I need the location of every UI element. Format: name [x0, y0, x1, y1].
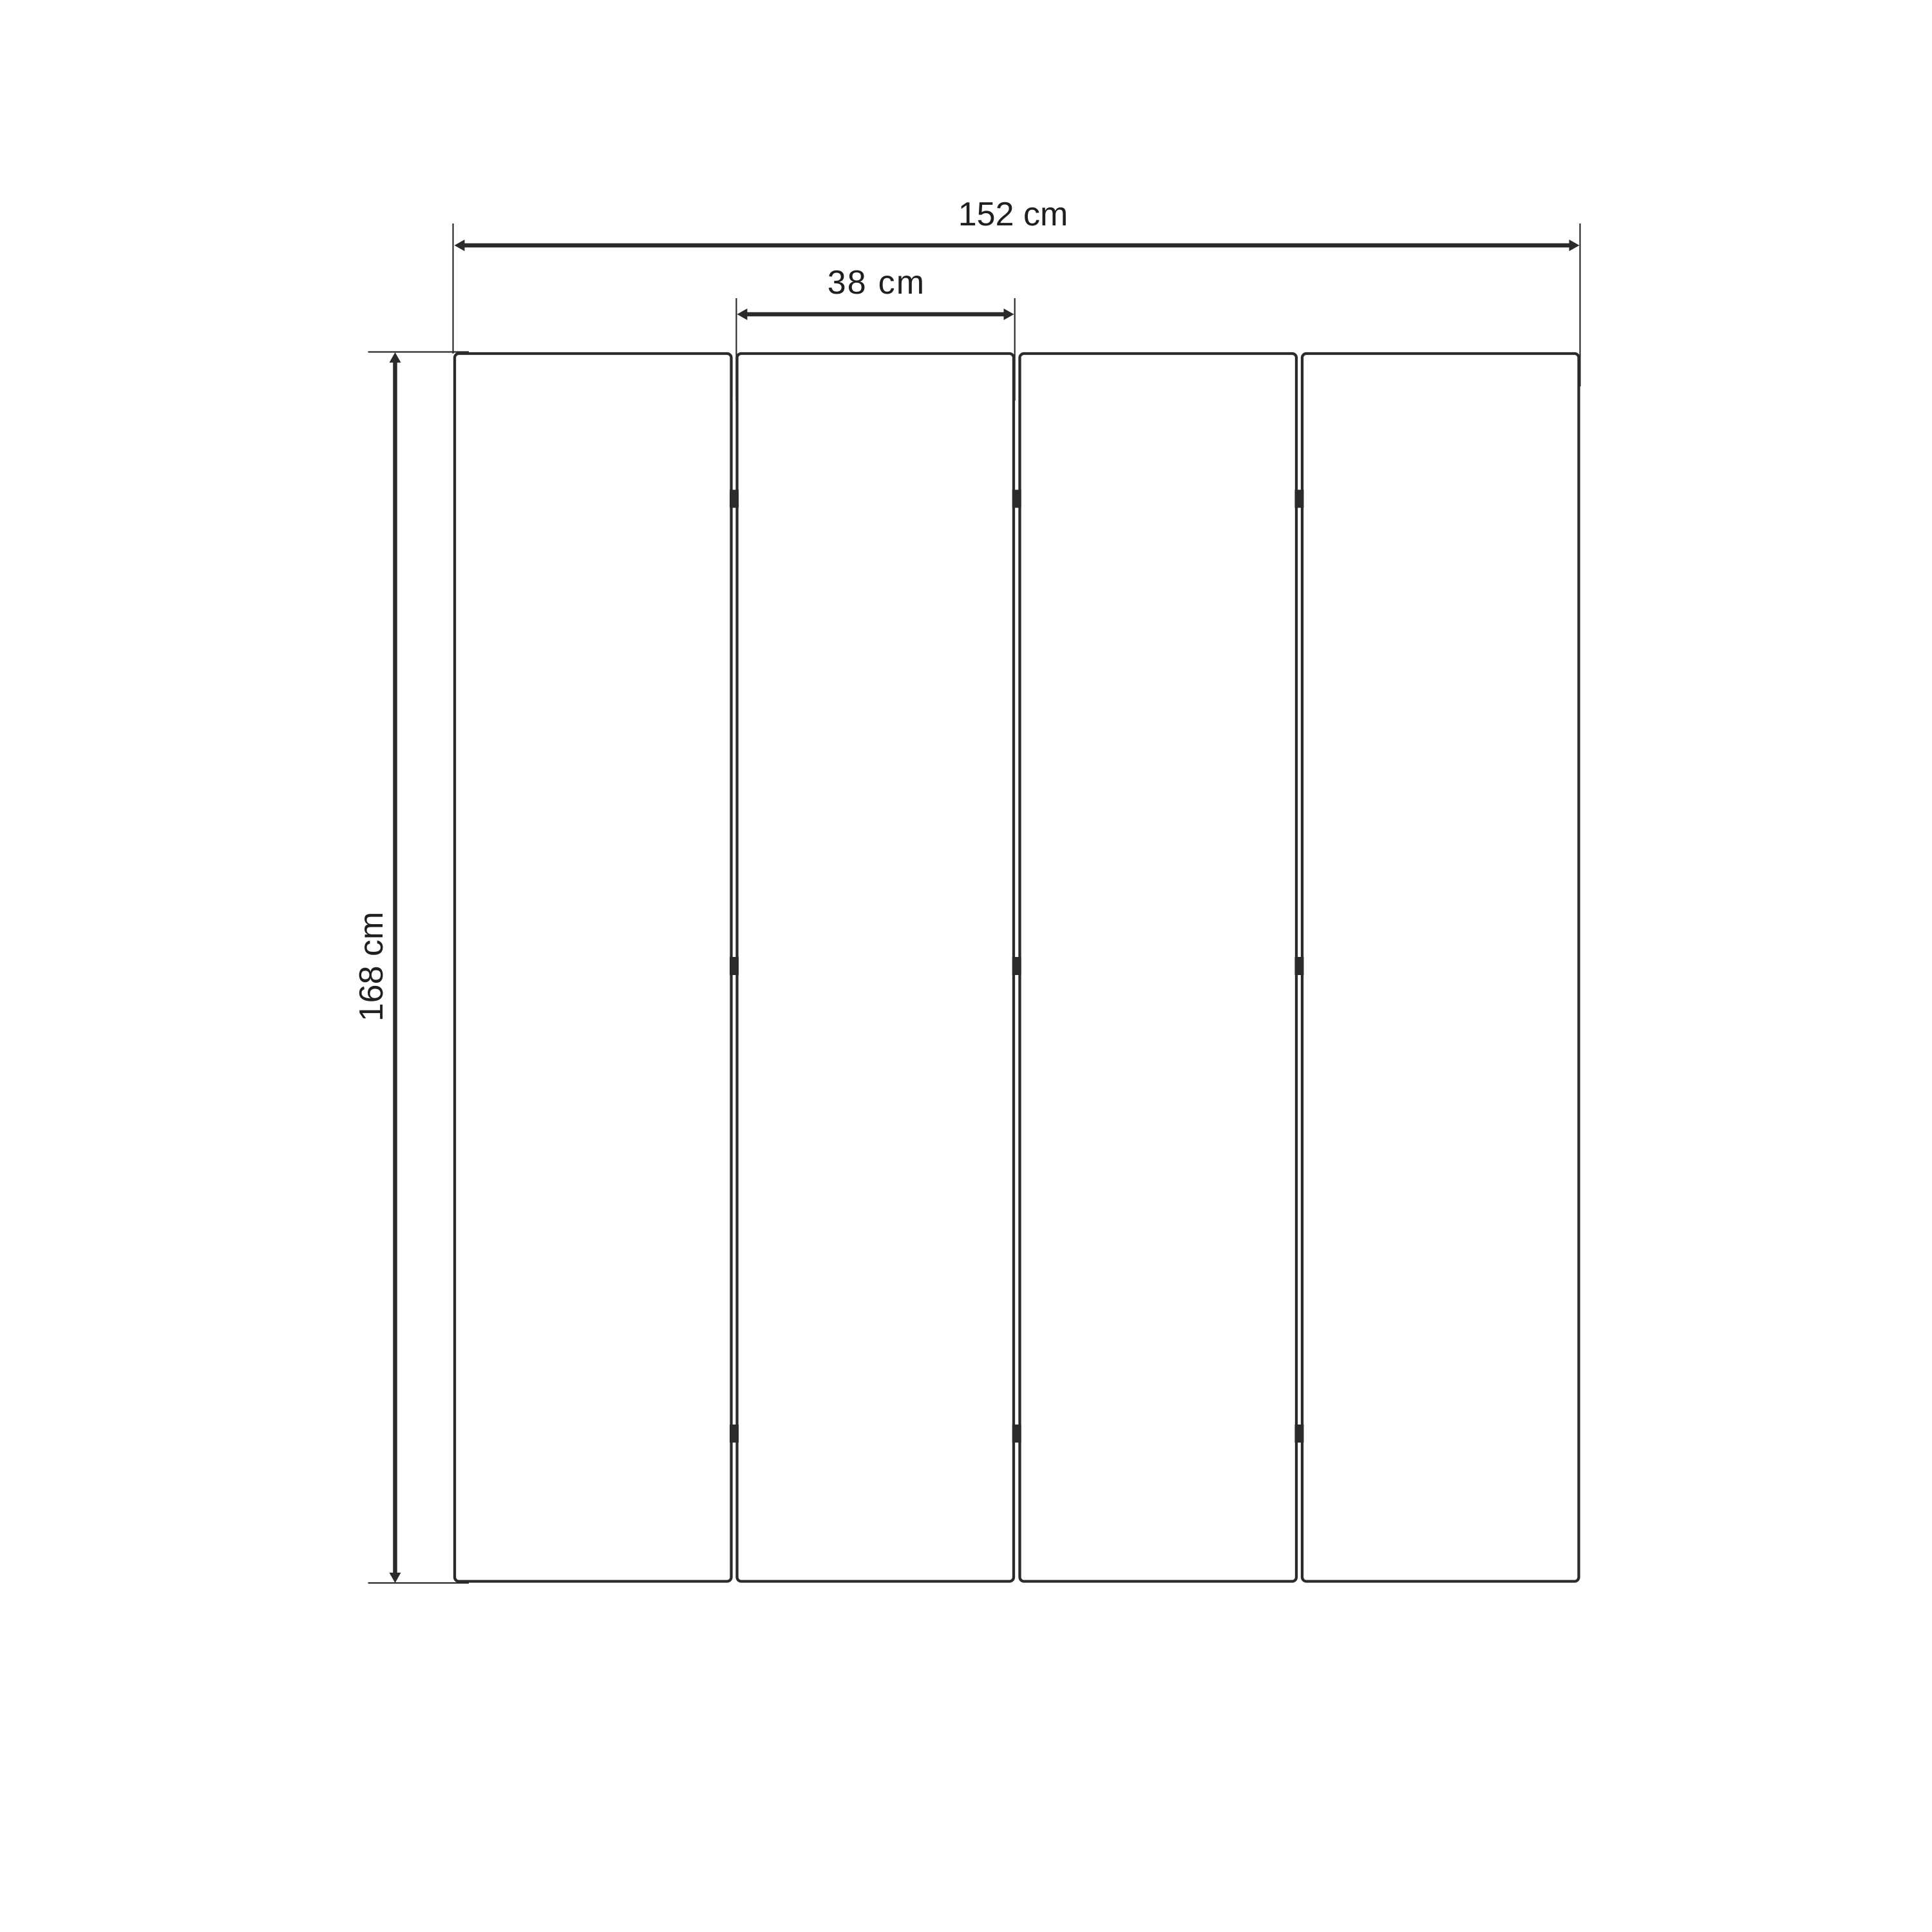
svg-text:38 cm: 38 cm — [828, 264, 926, 301]
svg-text:168 cm: 168 cm — [353, 912, 390, 1022]
svg-text:152 cm: 152 cm — [958, 196, 1068, 233]
